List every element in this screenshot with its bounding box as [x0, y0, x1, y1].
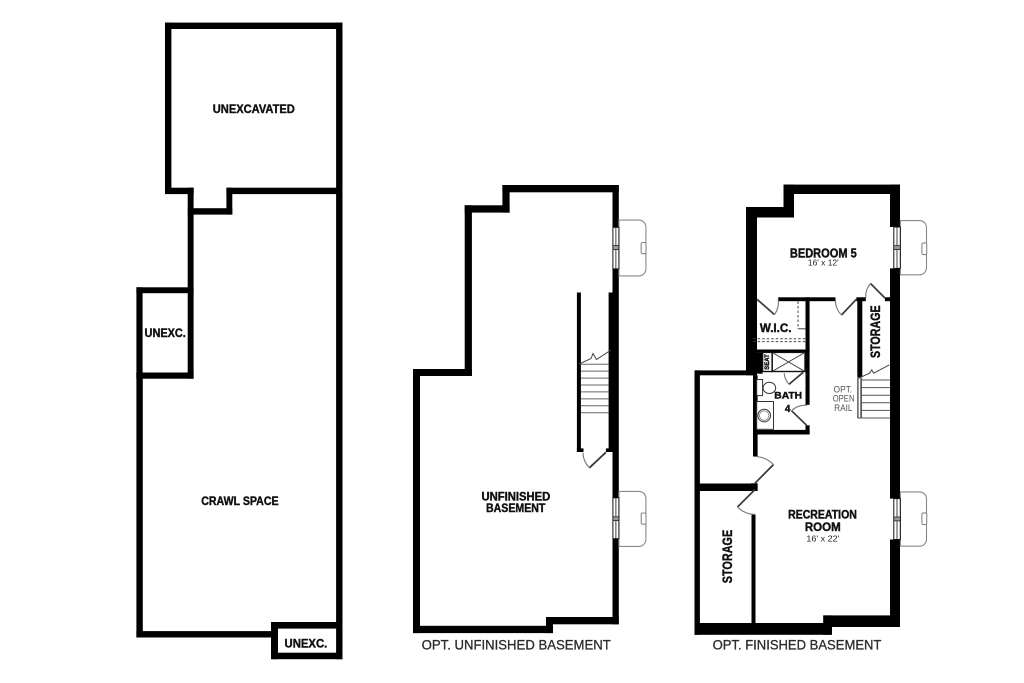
svg-text:CRAWL SPACE: CRAWL SPACE: [201, 496, 279, 508]
svg-text:OPT. UNFINISHED BASEMENT: OPT. UNFINISHED BASEMENT: [422, 637, 612, 653]
svg-text:W.I.C.: W.I.C.: [760, 323, 792, 335]
svg-text:BASEMENT: BASEMENT: [486, 503, 545, 515]
svg-text:16' x 12': 16' x 12': [808, 257, 839, 267]
svg-text:UNEXC.: UNEXC.: [285, 637, 328, 651]
svg-text:RAIL: RAIL: [834, 403, 852, 413]
svg-text:UNFINISHED: UNFINISHED: [482, 491, 551, 503]
svg-text:RECREATION: RECREATION: [788, 510, 857, 522]
svg-text:OPT. FINISHED BASEMENT: OPT. FINISHED BASEMENT: [713, 636, 882, 652]
svg-text:UNEXC.: UNEXC.: [145, 326, 186, 340]
svg-text:UNEXCAVATED: UNEXCAVATED: [213, 102, 295, 116]
svg-text:4: 4: [785, 404, 791, 415]
svg-text:ROOM: ROOM: [805, 522, 841, 534]
svg-text:SEAT: SEAT: [765, 354, 771, 370]
svg-text:16' x 22': 16' x 22': [806, 533, 839, 543]
svg-text:BATH: BATH: [774, 391, 802, 402]
svg-text:STORAGE: STORAGE: [720, 530, 735, 584]
svg-text:OPEN: OPEN: [833, 393, 855, 403]
svg-text:STORAGE: STORAGE: [868, 305, 883, 358]
